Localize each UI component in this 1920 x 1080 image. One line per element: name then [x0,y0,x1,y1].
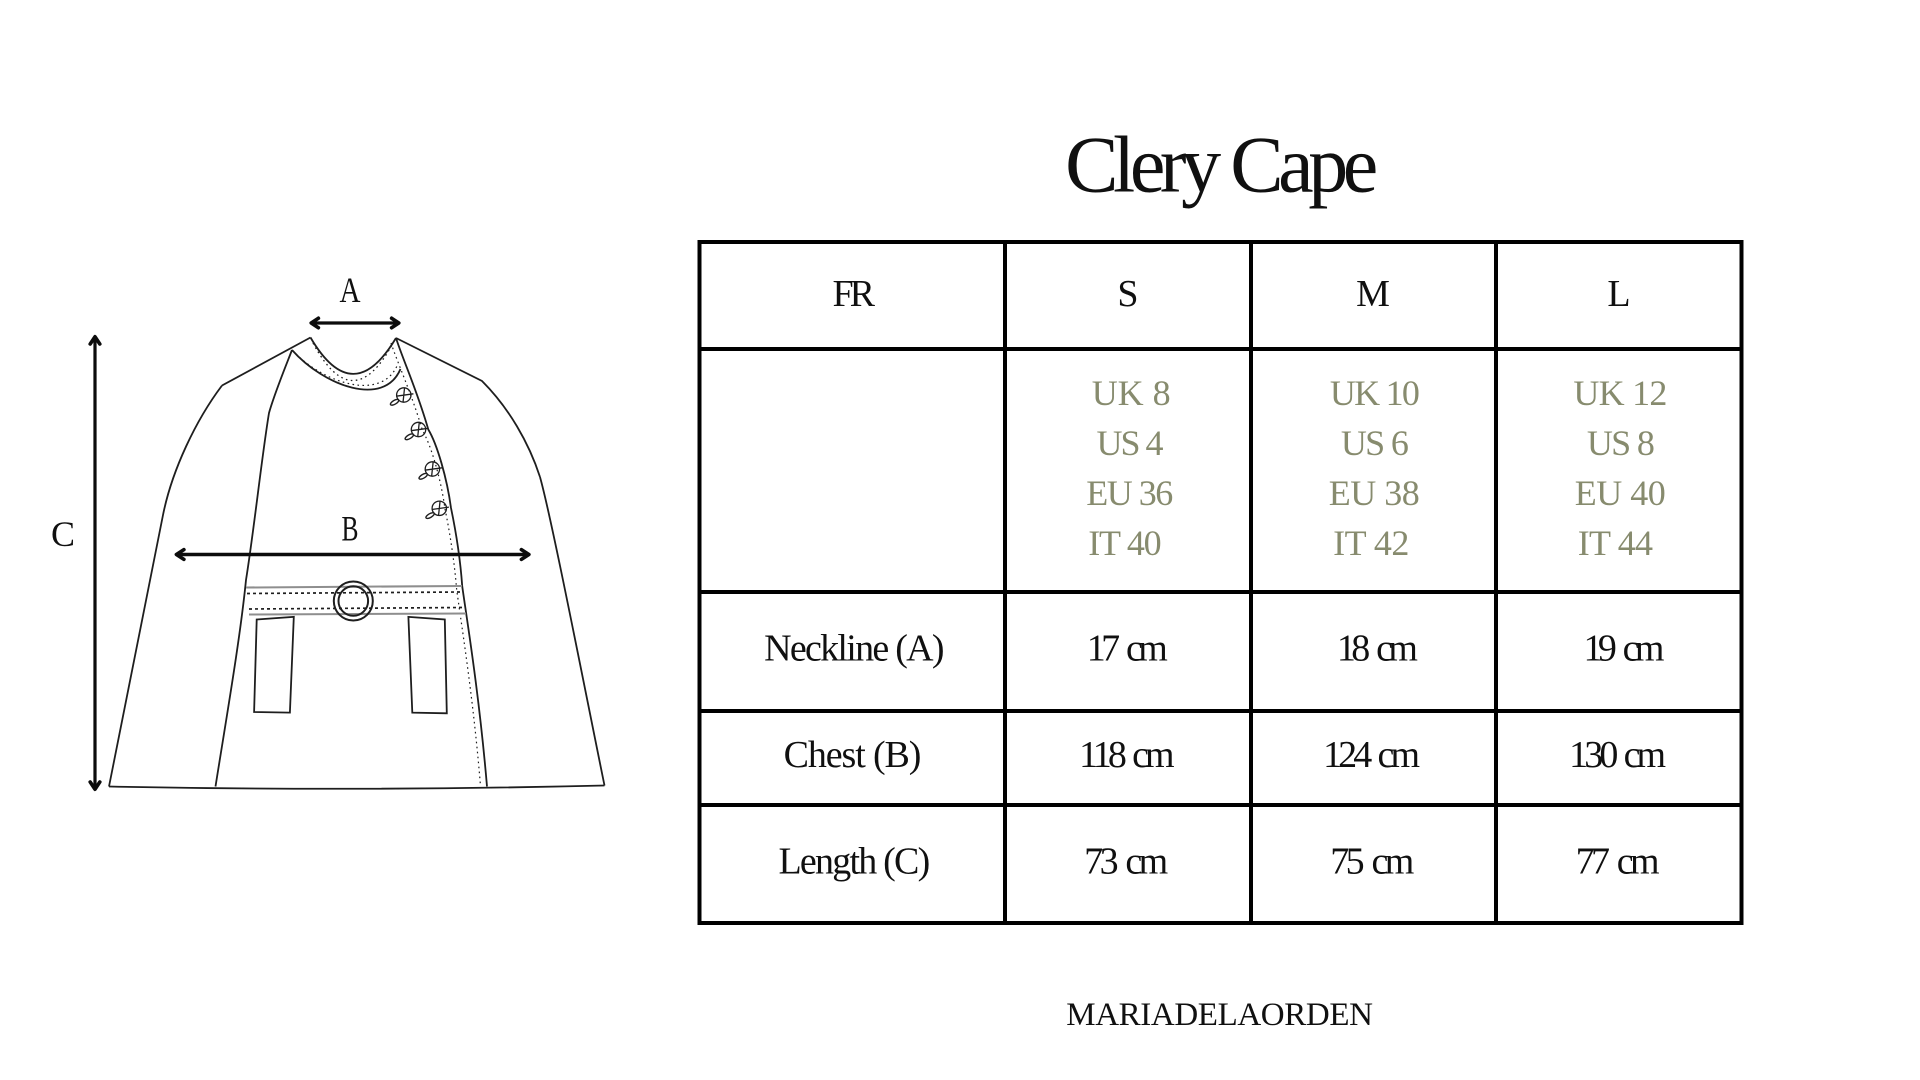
svg-text:Neckline (A): Neckline (A) [764,628,943,670]
svg-text:IT 44: IT 44 [1578,523,1653,563]
svg-text:US 4: US 4 [1096,423,1163,463]
svg-text:EU 38: EU 38 [1329,473,1420,513]
svg-text:US 8: US 8 [1587,423,1654,463]
svg-text:130 cm: 130 cm [1569,734,1665,776]
svg-text:124 cm: 124 cm [1323,734,1419,776]
svg-text:UK 10: UK 10 [1330,373,1419,413]
svg-text:18 cm: 18 cm [1337,628,1417,670]
svg-text:Clery Cape: Clery Cape [1065,122,1376,210]
svg-text:17 cm: 17 cm [1087,628,1167,670]
svg-text:75 cm: 75 cm [1330,840,1413,882]
svg-text:S: S [1117,273,1138,315]
svg-text:B: B [342,509,359,549]
svg-text:Length (C): Length (C) [779,840,929,882]
svg-text:L: L [1607,273,1630,315]
svg-text:118 cm: 118 cm [1079,734,1174,776]
svg-text:Chest (B): Chest (B) [784,734,921,776]
svg-text:FR: FR [833,273,876,315]
svg-text:US 6: US 6 [1341,423,1408,463]
svg-text:73 cm: 73 cm [1084,840,1167,882]
svg-text:IT 42: IT 42 [1333,523,1409,563]
svg-text:C: C [51,514,75,554]
svg-text:UK 8: UK 8 [1092,373,1171,413]
svg-text:19 cm: 19 cm [1583,628,1663,670]
svg-text:EU 40: EU 40 [1575,473,1666,513]
svg-text:UK 12: UK 12 [1573,373,1666,413]
svg-text:77 cm: 77 cm [1576,840,1659,882]
svg-text:M: M [1356,273,1390,315]
svg-text:EU 36: EU 36 [1086,473,1172,513]
svg-text:A: A [340,270,361,310]
svg-text:IT 40: IT 40 [1088,523,1160,563]
svg-text:MARIADELAORDEN: MARIADELAORDEN [1066,997,1373,1033]
